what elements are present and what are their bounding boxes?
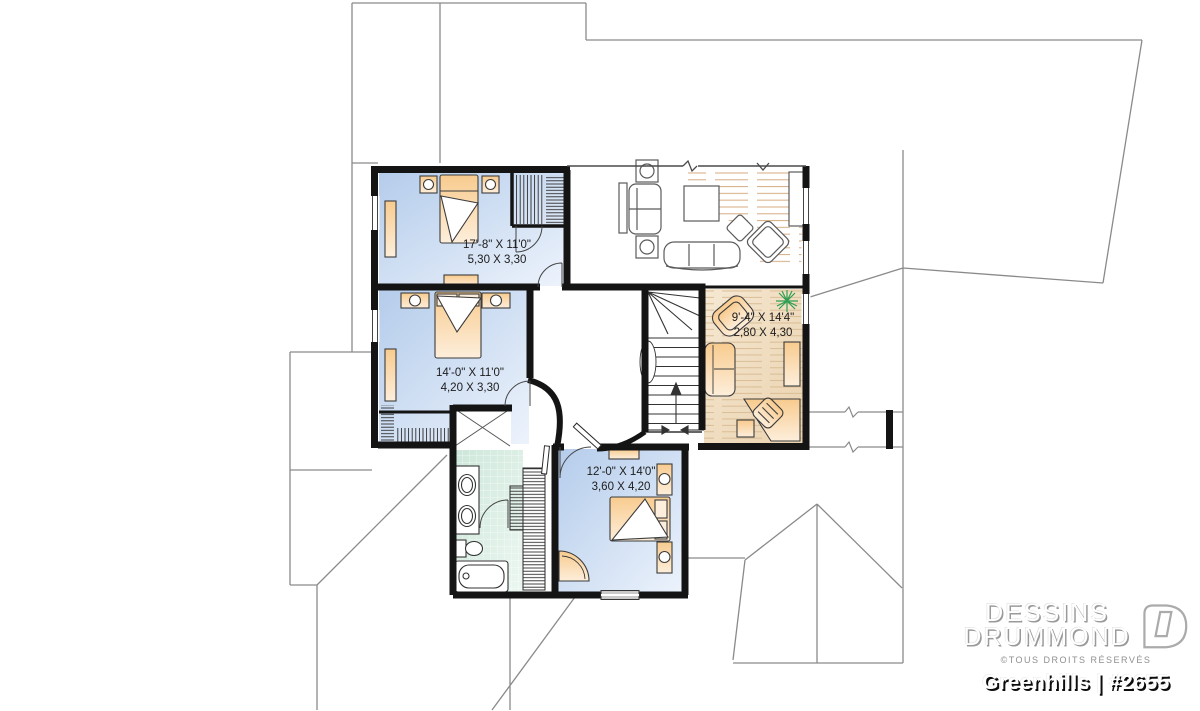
plan-title: Greenhills | #2655 <box>960 671 1192 695</box>
sitting-room-dim-imperial: 9'-4" X 14'4" <box>732 312 794 324</box>
bedroom2-dim-imperial: 14'-0" X 11'0" <box>436 367 504 379</box>
window <box>802 241 811 274</box>
bedroom3-dim-metric: 3,60 X 4,20 <box>592 481 651 493</box>
roof-break-marks <box>845 406 858 453</box>
small-sofa <box>705 343 735 396</box>
plant-icon <box>776 290 798 312</box>
brand-line2: DRUMMOND <box>963 625 1130 650</box>
brand-block: DESSINS DRUMMOND ©TOUS DROITS RÉSERVÉS G… <box>960 597 1192 695</box>
sitting-room-dim-metric: 2,80 X 4,30 <box>734 327 793 339</box>
toilet-bowl <box>466 542 483 556</box>
staircase <box>640 292 704 434</box>
square-table <box>684 186 719 221</box>
window <box>802 188 811 224</box>
side-table <box>737 420 754 437</box>
brand-wordmark: DESSINS DRUMMOND <box>963 601 1130 650</box>
window <box>371 196 380 230</box>
dresser <box>385 349 396 401</box>
window <box>371 310 380 342</box>
brand-line1: DESSINS <box>963 601 1130 626</box>
floor-plan-page: 17'-8" X 11'0" 5,30 X 3,30 14'-0" X 11'0… <box>0 0 1200 711</box>
lamp <box>640 240 654 254</box>
rights-notice: ©TOUS DROITS RÉSERVÉS <box>960 655 1192 665</box>
bedroom3-dim-imperial: 12'-0" X 14'0" <box>587 466 656 478</box>
window-sill <box>601 591 639 600</box>
attic-space <box>455 408 511 447</box>
dresser <box>385 201 396 257</box>
toilet-tank <box>456 540 466 557</box>
window-desk <box>784 342 800 386</box>
roof-wall-stub <box>886 410 893 449</box>
drummond-d-logo-icon <box>1137 597 1189 653</box>
bedroom2-dim-metric: 4,20 X 3,30 <box>441 382 500 394</box>
window <box>802 294 811 324</box>
bedroom1-dim-imperial: 17'-8" X 11'0" <box>463 239 531 251</box>
sofa <box>664 242 740 268</box>
bedroom1-dim-metric: 5,30 X 3,30 <box>468 254 527 266</box>
console-table <box>619 183 627 233</box>
